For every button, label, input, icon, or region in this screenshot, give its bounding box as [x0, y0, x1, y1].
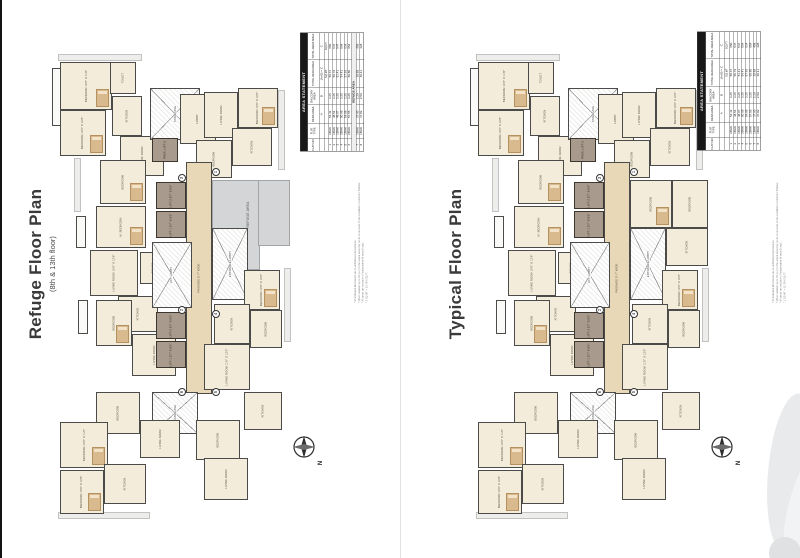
- plan-flat-number-badge: 2: [596, 306, 604, 314]
- plan-flat-number-badge: 4: [630, 310, 638, 318]
- table-cell: 2.29: [753, 86, 756, 103]
- table-cell: 2BHK: [749, 123, 752, 137]
- table-cell: A: [719, 103, 724, 122]
- typical-disclaimer-notes: * All indicated dimensions are in unfini…: [772, 188, 790, 294]
- plan-lift: LIFT-2 5'7" X 8'0": [574, 182, 604, 209]
- table-cell: 654: [749, 32, 752, 58]
- table-cell: BALCONY AREA: [706, 86, 719, 103]
- plan-label: BEDROOM 10'0" X 10'0": [675, 92, 678, 125]
- table-cell: 1BHK: [745, 123, 748, 137]
- plan-room: BEDROOM: [630, 180, 672, 228]
- table-cell: [725, 103, 730, 122]
- plan-room: BEDROOM: [518, 160, 564, 204]
- table-cell: [719, 137, 724, 150]
- bed-icon: [548, 227, 561, 245]
- plan-hatchx: ENTRANCE LOBBY: [630, 228, 666, 300]
- plan-label: KITCHEN: [543, 110, 546, 123]
- bed-icon: [510, 447, 523, 465]
- table-cell: 1BHK: [753, 123, 756, 137]
- table-cell: [725, 86, 730, 103]
- table-cell: 58.67: [730, 58, 733, 86]
- table-cell: 428: [757, 32, 760, 58]
- plan-label: BEDROOM: [534, 406, 537, 421]
- table-cell: 3.25: [741, 86, 744, 103]
- plan-room: BEDROOM 10'0" X 10'6": [478, 110, 524, 156]
- plan-room: TOILET: [528, 62, 554, 94]
- bed-icon: [514, 89, 527, 107]
- table-cell: 40.41: [757, 58, 760, 86]
- table-row: 51BHK54.683.2557.93634: [745, 32, 749, 150]
- plan-label: BEDROOM 10'0" X 11'6": [503, 70, 506, 102]
- table-cell: 57.93: [745, 58, 748, 86]
- typical-floor-panel: Typical Floor Plan BEDROOMBEDROOMKITCHEN…: [0, 0, 800, 558]
- plan-label: 6: [598, 391, 603, 394]
- typical-title-block: Typical Floor Plan: [436, 188, 478, 340]
- plan-flat-number-badge: 6: [596, 388, 604, 396]
- plan-label: KITCHEN: [685, 241, 688, 254]
- north-label: N: [736, 461, 742, 465]
- plan-label: BEDROOM 10'0" X 10'6": [500, 117, 503, 150]
- plan-label: LIFT-1 5'7" X 8'0": [588, 343, 591, 366]
- bed-icon: [656, 207, 669, 225]
- table-cell: 564: [741, 32, 744, 58]
- plan-room: M. BEDROOM: [514, 206, 564, 248]
- area-table: AREA STATEMENTFLAT NO.FLAT TYPERERA AREA…: [697, 32, 761, 151]
- plan-label: BEDROOM: [682, 322, 685, 337]
- plan-room: BEDROOM: [614, 420, 658, 460]
- bed-icon: [548, 183, 561, 201]
- plan-label: KITCHEN: [554, 308, 557, 321]
- table-header-row: FLAT NO.FLAT TYPERERA AREABALCONY AREATO…: [705, 32, 719, 150]
- table-row: 62BHK57.553.2560.80654: [748, 32, 752, 150]
- plan-lift: LIFT-1 5'7" X 8'0": [574, 341, 604, 368]
- plan-label: BEDROOM 10'0" X 11'0": [501, 429, 504, 461]
- plan-chajja: [492, 158, 499, 212]
- table-cell: C: [719, 32, 724, 58]
- table-cell: 547: [737, 32, 740, 58]
- table-cell: 1: [730, 137, 733, 150]
- plan-lift: PASS. LIFT-3: [570, 138, 596, 162]
- table-cell: 5: [745, 137, 748, 150]
- plan-label: 3: [598, 177, 603, 180]
- table-cell: 3.25: [730, 86, 733, 103]
- table-cell: 2: [733, 137, 736, 150]
- table-row: 81BHK37.822.5940.41428: [756, 32, 760, 150]
- brochure-page: Refuge Floor Plan (8th & 13th floor) REF…: [0, 0, 800, 558]
- table-cell: FLAT TYPE: [706, 123, 719, 137]
- plan-label: LIVING ROOM 11'0" X 12'0": [644, 349, 647, 386]
- table-cell: 458: [753, 32, 756, 58]
- disclaimer-line: * 1 SQ.MT. = 10.764 SQ.FT.: [783, 197, 787, 303]
- plan-label: LIFT-2 5'7" X 8'0": [588, 184, 591, 207]
- plan-label: BEDROOM: [539, 175, 542, 190]
- plan-label: TOILET: [539, 73, 542, 83]
- plan-label: BEDROOM 10'0" X 10'6": [499, 476, 502, 509]
- table-cell: SQ.FT: [725, 32, 730, 58]
- table-cell: 650: [730, 32, 733, 58]
- table-cell: 4: [741, 137, 744, 150]
- plan-room: LIVING ROOM 11'0" X 12'0": [622, 344, 668, 390]
- table-cell: 48.54: [733, 103, 736, 122]
- bed-icon: [680, 107, 693, 125]
- plan-chajja: [702, 268, 709, 342]
- table-cell: 1BHK: [757, 123, 760, 137]
- plan-label: ENTRANCE LOBBY: [647, 250, 650, 278]
- plan-room: KITCHEN: [666, 228, 708, 266]
- plan-label: BEDROOM: [634, 433, 637, 448]
- plan-room: LIVING ROOM: [622, 458, 666, 500]
- table-cell: 60.80: [749, 58, 752, 86]
- plan-label: KITCHEN: [679, 405, 682, 418]
- table-cell: [725, 137, 730, 150]
- plan-room: BEDROOM 10'0" X 11'0": [478, 422, 526, 468]
- typical-floor-plan-drawing: BEDROOMBEDROOMKITCHENBEDROOM 10'0" X 11'…: [476, 10, 716, 525]
- table-row: 71BHK37.602.2939.89458: [752, 32, 756, 150]
- plan-lift: LIFT-1 5'7" X 8'0": [574, 211, 604, 238]
- bed-icon: [682, 289, 695, 307]
- table-cell: 2BHK: [741, 123, 744, 137]
- plan-room: BEDROOM 10'0" X 10'6": [478, 470, 522, 514]
- table-row: 12BHK54.423.2558.67650: [729, 32, 733, 150]
- table-cell: 1BHK: [733, 123, 736, 137]
- plan-flat-number-badge: 3: [596, 174, 604, 182]
- table-row: 21BHK48.543.2550.79547: [733, 32, 737, 150]
- plan-label: LIVING ROOM: [643, 469, 646, 488]
- table-cell: SQ.MT: [725, 58, 730, 86]
- table-cell: 57.55: [749, 103, 752, 122]
- table-cell: 54.68: [745, 103, 748, 122]
- plan-room: BEDROOM: [514, 300, 550, 346]
- plan-room: KITCHEN: [650, 128, 690, 166]
- plan-label: KITCHEN: [541, 478, 544, 491]
- plan-label: LIVING ROOM: [638, 105, 641, 124]
- area-table-title: AREA STATEMENT: [697, 32, 705, 150]
- disclaimer-lines: * All indicated dimensions are in unfini…: [772, 197, 790, 303]
- plan-balcony: [494, 216, 504, 248]
- bed-icon: [506, 493, 519, 511]
- plan-label: BEDROOM: [649, 197, 652, 212]
- table-cell: 1BHK: [737, 123, 740, 137]
- plan-room: KITCHEN: [662, 392, 700, 430]
- bed-icon: [534, 325, 547, 343]
- table-cell: 54.41: [741, 58, 744, 86]
- plan-label: LIFT-1 5'7" X 8'0": [588, 213, 591, 236]
- table-cell: TOTAL RERA AREA: [706, 32, 719, 58]
- plan-room: LIVING ROOM 10'0" X 12'6": [508, 250, 556, 296]
- plan-label: 1: [632, 171, 637, 174]
- table-cell: 3.25: [733, 86, 736, 103]
- plan-label: LIVING ROOM 10'0" X 12'6": [531, 254, 534, 291]
- plan-room: BEDROOM 10'0" X 10'0": [656, 88, 696, 128]
- table-cell: B: [719, 86, 724, 103]
- table-cell: (A+B) = C: [719, 58, 724, 86]
- table-cell: 37.82: [757, 103, 760, 122]
- plan-label: 2: [598, 309, 603, 312]
- plan-room: BEDROOM: [672, 180, 708, 228]
- table-cell: 50.68: [741, 103, 744, 122]
- table-cell: 6: [749, 137, 752, 150]
- table-subheader-row: AB(A+B) = CC: [719, 32, 725, 150]
- table-cell: 51.41: [737, 58, 740, 86]
- plan-room: BEDROOM: [668, 310, 700, 348]
- plan-label: BEDROOM: [688, 197, 691, 212]
- table-cell: 2.59: [757, 86, 760, 103]
- plan-room: KITCHEN: [530, 96, 560, 136]
- table-unit-row: SQ.MTSQ.FT: [724, 32, 729, 150]
- table-cell: RERA AREA: [706, 103, 719, 122]
- plan-flat-number-badge: 5: [630, 388, 638, 396]
- table-cell: 3.25: [749, 86, 752, 103]
- plan-label: PASSAGE 5'-7" WIDE: [616, 264, 619, 293]
- plan-room: KITCHEN: [632, 304, 668, 344]
- table-cell: 50.79: [733, 58, 736, 86]
- plan-flat-number-badge: 1: [630, 168, 638, 176]
- plan-label: STAIRCASE: [591, 105, 594, 123]
- table-cell: 8: [757, 137, 760, 150]
- table-cell: 48.07: [737, 103, 740, 122]
- table-cell: 37.60: [753, 103, 756, 122]
- table-cell: [719, 123, 724, 137]
- table-body: 12BHK54.423.2558.6765021BHK48.543.2550.7…: [729, 32, 760, 150]
- plan-room: BEDROOM 10'0" X 11'6": [478, 62, 530, 110]
- table-row: 31BHK48.073.2551.41547: [737, 32, 741, 150]
- table-cell: TOTAL RERA AREA: [706, 58, 719, 86]
- compass-icon: N: [709, 434, 739, 464]
- plan-label: LIFT-2 5'7" X 8'0": [588, 314, 591, 337]
- table-cell: 3.25: [737, 86, 740, 103]
- table-cell: 2BHK: [730, 123, 733, 137]
- plan-label: PASS. LIFT-3: [582, 141, 585, 159]
- plan-lift: LIFT-2 5'7" X 8'0": [574, 312, 604, 339]
- table-row: 42BHK50.683.2554.41564: [741, 32, 745, 150]
- typical-area-statement-table: AREA STATEMENTFLAT NO.FLAT TYPERERA AREA…: [696, 31, 759, 149]
- plan-balcony: [496, 300, 506, 334]
- table-cell: 54.42: [730, 103, 733, 122]
- plan-label: 5: [632, 391, 637, 394]
- plan-chajja: [476, 54, 560, 61]
- plan-label: KITCHEN: [668, 141, 671, 154]
- plan-room: LIVING ROOM: [558, 420, 598, 458]
- table-cell: 39.89: [753, 58, 756, 86]
- plan-room: KITCHEN: [522, 464, 564, 504]
- typical-plan-title: Typical Floor Plan: [446, 189, 466, 340]
- plan-label: M. BEDROOM: [538, 217, 541, 236]
- plan-label: KITCHEN: [648, 318, 651, 331]
- table-cell: FLAT NO.: [706, 137, 719, 150]
- plan-label: BEDROOM: [630, 152, 633, 167]
- bed-icon: [508, 135, 521, 153]
- plan-hatchx: LIFT LOBBY: [570, 242, 610, 308]
- table-cell: 634: [745, 32, 748, 58]
- plan-label: 4: [632, 313, 637, 316]
- plan-label: LIFT LOBBY: [588, 266, 591, 285]
- table-cell: 3: [737, 137, 740, 150]
- table-cell: 7: [753, 137, 756, 150]
- plan-label: LOBBY: [615, 114, 618, 124]
- table-cell: 3.25: [745, 86, 748, 103]
- plan-label: LIVING ROOM: [577, 429, 580, 448]
- table-cell: [725, 123, 730, 137]
- table-cell: 547: [733, 32, 736, 58]
